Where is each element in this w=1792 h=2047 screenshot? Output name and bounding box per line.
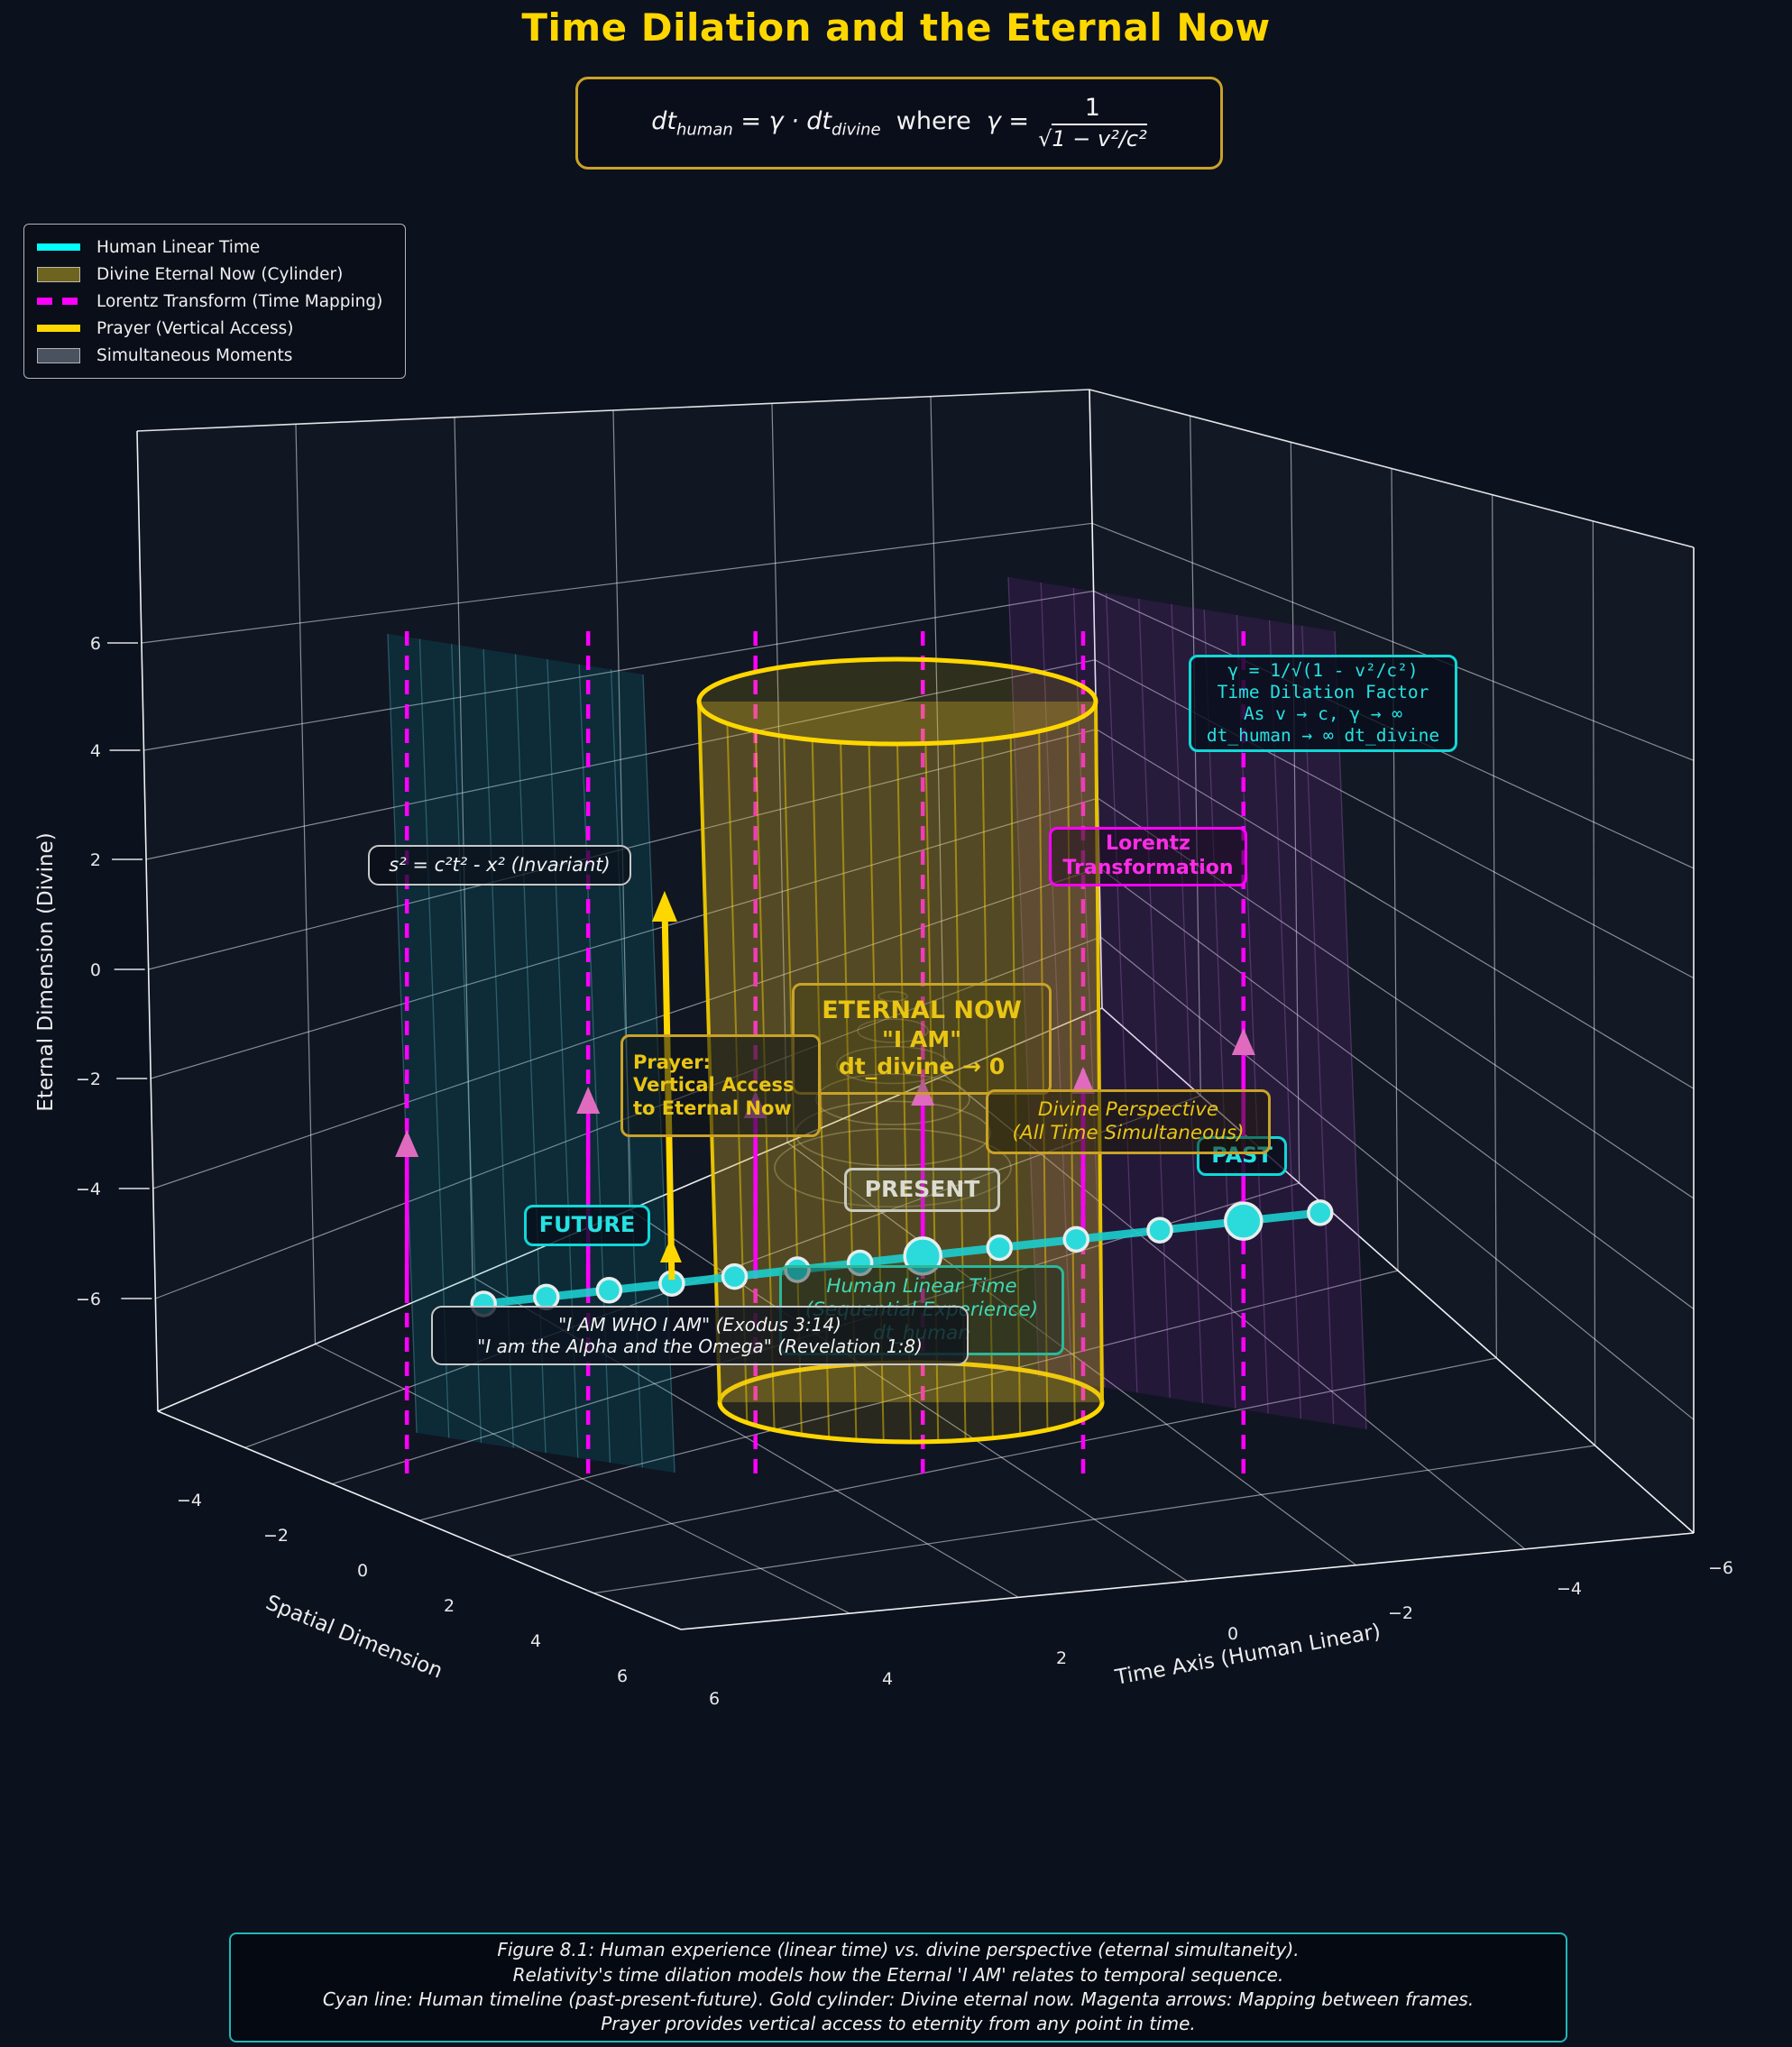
svg-text:4: 4: [882, 1669, 893, 1689]
legend-item: Simultaneous Moments: [37, 342, 394, 369]
svg-text:6: 6: [617, 1666, 628, 1686]
svg-text:−4: −4: [76, 1180, 101, 1199]
legend: Human Linear Time Divine Eternal Now (Cy…: [23, 224, 406, 379]
svg-text:4: 4: [90, 741, 101, 761]
legend-item: Lorentz Transform (Time Mapping): [37, 288, 394, 315]
svg-text:6: 6: [90, 634, 101, 654]
svg-text:6: 6: [709, 1689, 720, 1709]
svg-text:2: 2: [90, 850, 101, 870]
svg-text:−2: −2: [263, 1526, 289, 1546]
svg-text:2: 2: [444, 1596, 455, 1616]
formula-fraction: 1 √1 − v²/c²: [1038, 96, 1147, 151]
figure-caption: Figure 8.1: Human experience (linear tim…: [229, 1932, 1567, 2042]
present-label: PRESENT: [844, 1168, 1000, 1212]
svg-text:Spatial Dimension: Spatial Dimension: [262, 1591, 446, 1683]
timeline-moment-dot: [597, 1279, 620, 1302]
future-label: FUTURE: [524, 1205, 650, 1246]
svg-text:0: 0: [357, 1561, 368, 1581]
timeline-moment-dot: [1309, 1201, 1332, 1225]
figure-stage: 6420−2−4−6−4−202466420−2−4−6Spatial Dime…: [0, 0, 1792, 2047]
legend-swatch-gold-line: [37, 325, 80, 332]
svg-text:0: 0: [90, 960, 101, 980]
formula-text: dthuman = γ · dtdivine where γ =: [651, 107, 1029, 139]
cylinder-top-rim: [699, 659, 1096, 744]
timeline-moment-dot: [988, 1236, 1011, 1260]
invariant-equation-label: s² = c²t² - x² (Invariant): [368, 845, 631, 886]
svg-text:0: 0: [1227, 1624, 1238, 1644]
legend-item: Divine Eternal Now (Cylinder): [37, 261, 394, 288]
timeline-moment-dot: [722, 1265, 746, 1289]
legend-swatch-cyan-line: [37, 243, 80, 251]
lorentz-transformation-label: Lorentz Transformation: [1049, 827, 1247, 886]
timeline-moment-dot: [1148, 1218, 1172, 1242]
timeline-moment-dot: [1226, 1203, 1262, 1239]
legend-item: Human Linear Time: [37, 234, 394, 261]
formula-box: dthuman = γ · dtdivine where γ = 1 √1 − …: [575, 77, 1223, 170]
svg-text:2: 2: [1056, 1648, 1067, 1668]
svg-text:−4: −4: [177, 1491, 202, 1510]
svg-text:Time Axis (Human Linear): Time Axis (Human Linear): [1113, 1620, 1383, 1690]
svg-text:−2: −2: [1388, 1603, 1413, 1623]
svg-text:−6: −6: [76, 1290, 101, 1309]
page-title: Time Dilation and the Eternal Now: [0, 5, 1792, 50]
svg-text:−4: −4: [1557, 1579, 1582, 1599]
time-dilation-factor-annotation: γ = 1/√(1 - v²/c²) Time Dilation Factor …: [1189, 655, 1457, 752]
legend-swatch-magenta-dashed: [37, 298, 80, 305]
legend-swatch-gray-patch: [37, 348, 80, 363]
eternal-now-label: ETERNAL NOW "I AM" dt_divine → 0: [792, 983, 1052, 1095]
scripture-quotes-label: "I AM WHO I AM" (Exodus 3:14) "I am the …: [431, 1306, 969, 1365]
legend-swatch-gold-patch: [37, 267, 80, 282]
divine-perspective-label: Divine Perspective (All Time Simultaneou…: [986, 1089, 1271, 1154]
prayer-label: Prayer: Vertical Access to Eternal Now: [620, 1034, 821, 1137]
svg-text:Eternal Dimension (Divine): Eternal Dimension (Divine): [34, 832, 58, 1111]
svg-text:−6: −6: [1708, 1558, 1733, 1578]
svg-text:4: 4: [530, 1631, 541, 1651]
timeline-moment-dot: [1064, 1227, 1088, 1251]
legend-item: Prayer (Vertical Access): [37, 315, 394, 342]
svg-text:−2: −2: [76, 1069, 101, 1089]
